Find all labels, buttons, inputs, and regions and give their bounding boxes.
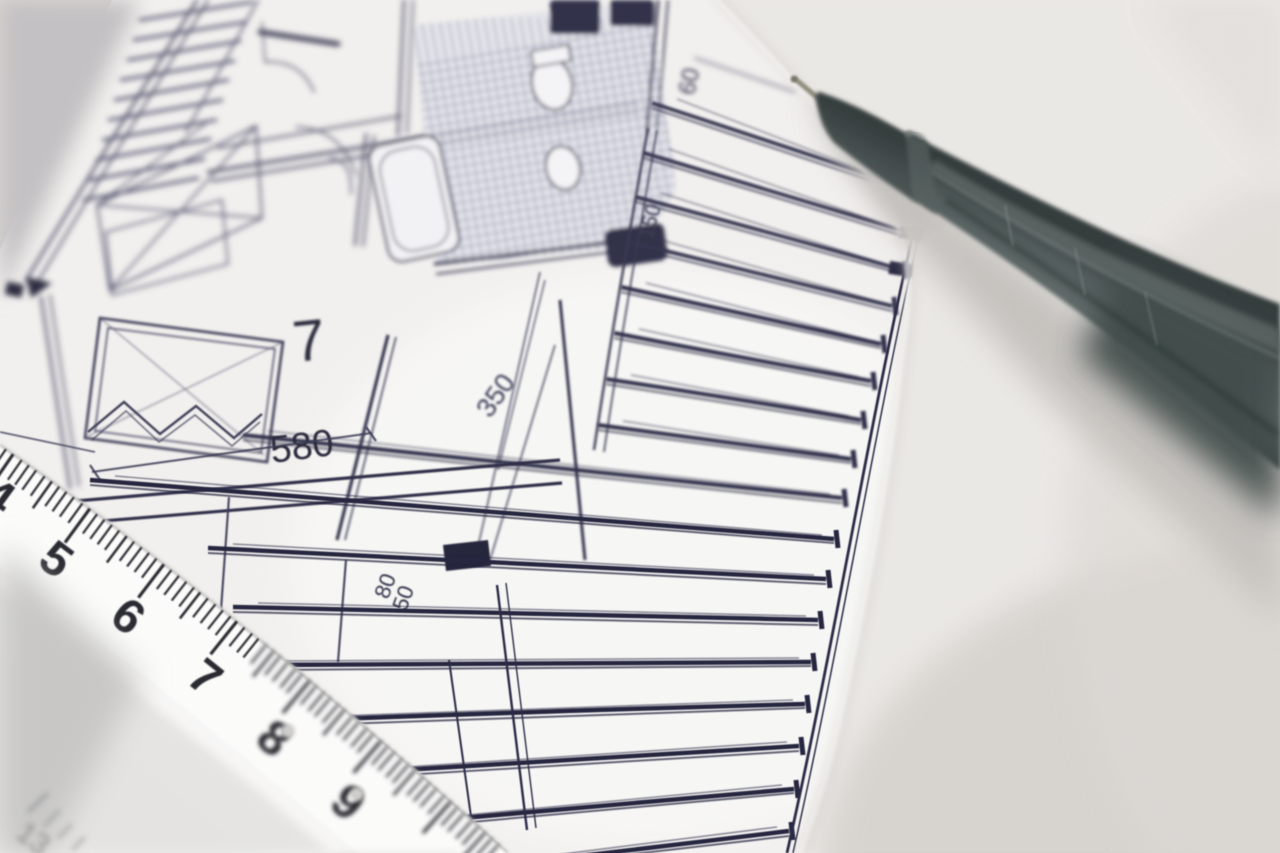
svg-text:7: 7: [290, 307, 329, 375]
svg-text:60: 60: [673, 66, 705, 98]
